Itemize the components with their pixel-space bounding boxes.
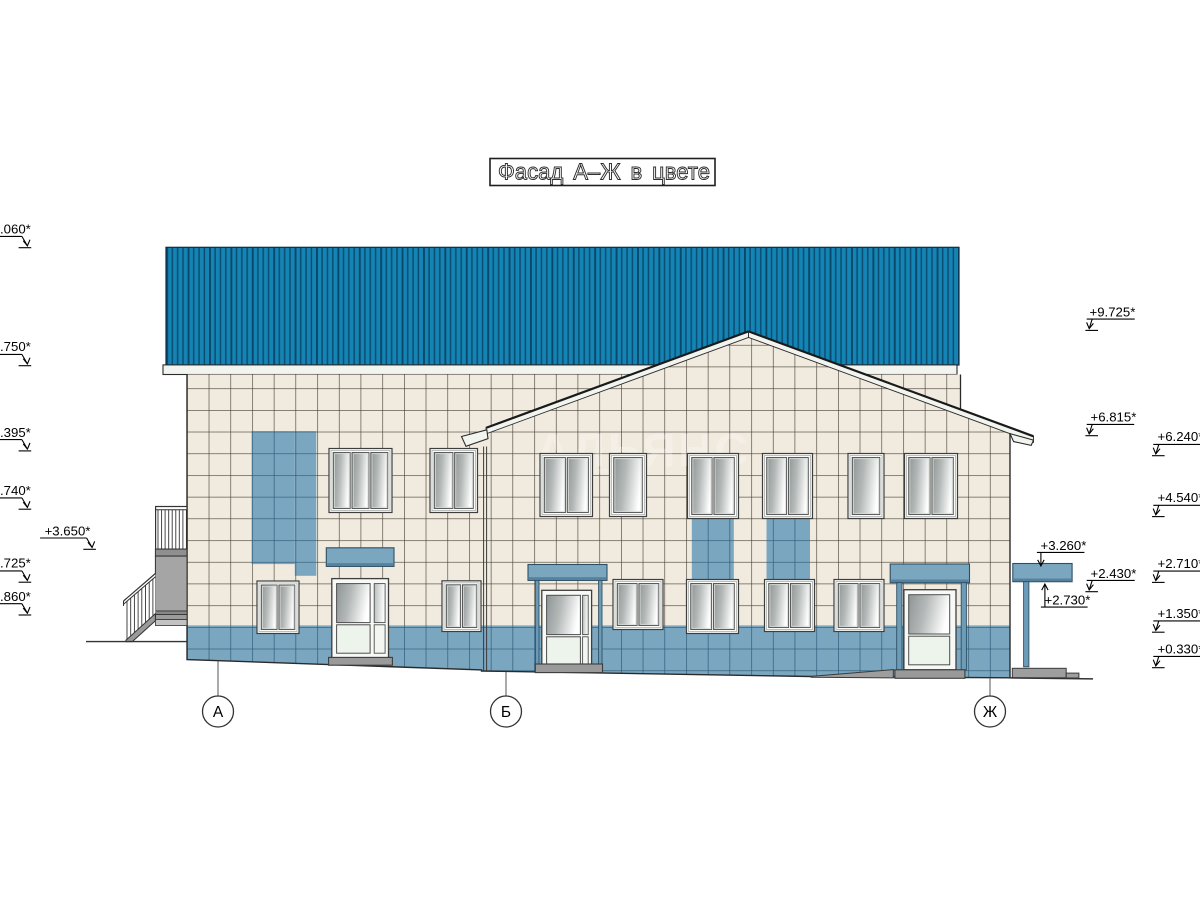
svg-text:+2.730*: +2.730* (1045, 592, 1091, 607)
svg-text:Б: Б (501, 704, 511, 721)
svg-text:Ж: Ж (983, 704, 998, 721)
svg-text:+6.815*: +6.815* (1091, 409, 1137, 424)
svg-text:.750*: .750* (0, 339, 31, 354)
svg-text:.860*: .860* (0, 589, 31, 604)
svg-text:+1.350*: +1.350* (1158, 606, 1200, 621)
svg-text:.725*: .725* (0, 556, 31, 571)
svg-text:.060*: .060* (0, 222, 31, 237)
svg-text:А: А (213, 704, 224, 721)
svg-text:+6.240*: +6.240* (1158, 429, 1200, 444)
svg-text:+2.430*: +2.430* (1091, 566, 1137, 581)
svg-text:.740*: .740* (0, 483, 31, 498)
svg-text:.395*: .395* (0, 425, 31, 440)
svg-text:+9.725*: +9.725* (1090, 304, 1136, 319)
svg-text:+4.540*: +4.540* (1158, 490, 1200, 505)
svg-text:+3.650*: +3.650* (45, 523, 91, 538)
svg-text:+2.710*: +2.710* (1158, 556, 1200, 571)
svg-text:Фасад А–Ж в цвете: Фасад А–Ж в цвете (498, 159, 710, 185)
svg-text:+3.260*: +3.260* (1041, 538, 1087, 553)
svg-text:+0.330*: +0.330* (1158, 641, 1200, 656)
